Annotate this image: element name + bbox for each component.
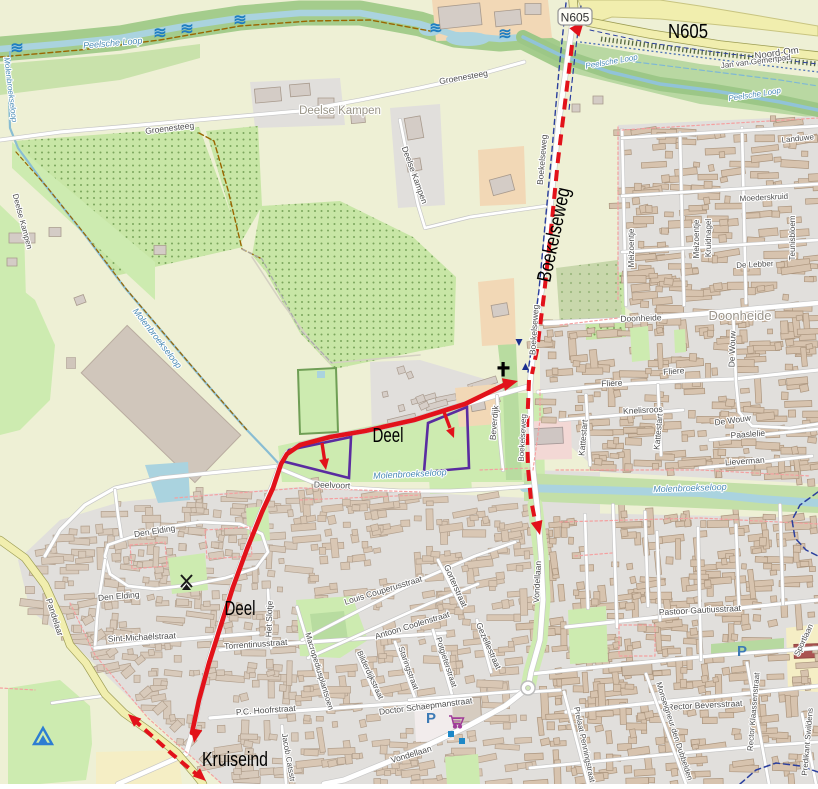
svg-text:N605: N605 bbox=[561, 11, 590, 25]
svg-text:Deel: Deel bbox=[225, 598, 256, 620]
svg-text:Fliere: Fliere bbox=[601, 377, 623, 388]
svg-text:≋: ≋ bbox=[180, 21, 193, 38]
svg-text:De Wouw: De Wouw bbox=[726, 330, 737, 368]
svg-text:N605: N605 bbox=[668, 21, 708, 43]
svg-text:Doonheide: Doonheide bbox=[709, 308, 772, 323]
svg-text:Meizoentje: Meizoentje bbox=[692, 219, 701, 258]
svg-text:Deelse Kampen: Deelse Kampen bbox=[299, 105, 381, 117]
svg-text:P: P bbox=[737, 643, 747, 660]
svg-text:≋: ≋ bbox=[233, 12, 246, 29]
svg-text:Deel: Deel bbox=[373, 425, 404, 447]
svg-text:P: P bbox=[426, 710, 436, 727]
svg-text:Fliere: Fliere bbox=[663, 365, 685, 376]
svg-text:Deelvoort: Deelvoort bbox=[314, 479, 351, 490]
svg-text:Het Slotje: Het Slotje bbox=[263, 600, 274, 637]
svg-text:≋: ≋ bbox=[498, 26, 511, 43]
svg-text:≋: ≋ bbox=[153, 25, 166, 42]
svg-text:Teunisbloem: Teunisbloem bbox=[788, 215, 797, 260]
svg-text:Doonheide: Doonheide bbox=[620, 312, 662, 323]
svg-text:≋: ≋ bbox=[10, 40, 23, 57]
svg-text:Kruiseind: Kruiseind bbox=[202, 749, 268, 771]
svg-text:Kruidnagel: Kruidnagel bbox=[704, 219, 713, 257]
svg-text:Meizoentje: Meizoentje bbox=[627, 228, 636, 267]
